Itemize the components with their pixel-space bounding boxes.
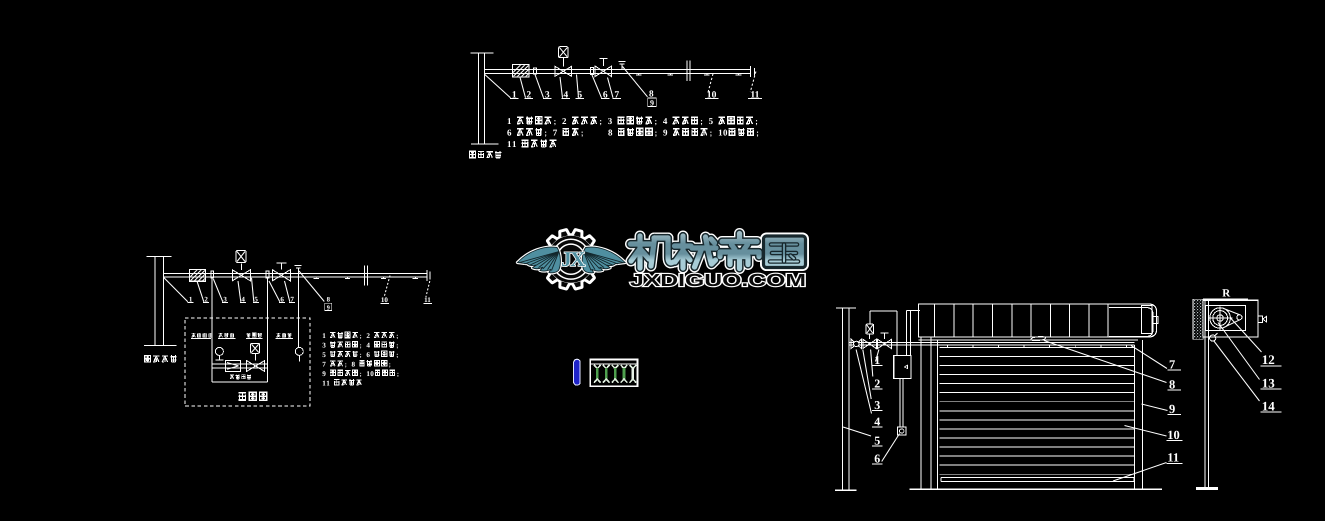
svg-text:;: ;: [756, 129, 759, 138]
svg-text:8: 8: [352, 360, 356, 368]
svg-text:10: 10: [1167, 428, 1180, 442]
svg-text:;: ;: [654, 117, 657, 126]
svg-text:11: 11: [1167, 451, 1179, 465]
svg-text:4: 4: [874, 415, 880, 429]
svg-text:6: 6: [366, 351, 370, 359]
svg-text:;: ;: [710, 129, 713, 138]
svg-text:;: ;: [396, 333, 398, 340]
svg-text:14: 14: [1262, 398, 1276, 413]
svg-text:1: 1: [189, 295, 193, 303]
svg-text:0: 0: [723, 128, 728, 138]
svg-text:;: ;: [581, 129, 584, 138]
svg-text:8: 8: [649, 88, 654, 98]
svg-text:12: 12: [1262, 352, 1275, 367]
svg-text:;: ;: [397, 371, 399, 378]
svg-text:1: 1: [874, 353, 880, 367]
svg-text:7: 7: [322, 360, 326, 368]
svg-text:5: 5: [874, 434, 880, 448]
svg-text:1: 1: [512, 139, 517, 149]
svg-text:;: ;: [544, 129, 547, 138]
svg-text:1: 1: [507, 116, 512, 126]
svg-text:9: 9: [322, 370, 326, 378]
svg-text:9: 9: [663, 128, 668, 138]
svg-text:;: ;: [554, 117, 557, 126]
svg-text:1: 1: [326, 379, 330, 387]
svg-text:9: 9: [327, 305, 330, 312]
svg-text:7: 7: [290, 295, 294, 303]
svg-text:1: 1: [322, 332, 326, 340]
svg-text:R: R: [1222, 288, 1231, 300]
svg-text:;: ;: [360, 333, 362, 340]
svg-text:9: 9: [650, 98, 654, 107]
svg-text:5: 5: [709, 116, 714, 126]
svg-text:2: 2: [204, 295, 208, 303]
svg-text:11: 11: [424, 296, 431, 304]
svg-text:;: ;: [599, 117, 602, 126]
svg-text:5: 5: [254, 295, 258, 303]
svg-text:;: ;: [360, 342, 362, 349]
svg-text:JX: JX: [561, 247, 585, 271]
svg-text:8: 8: [327, 296, 331, 303]
svg-text:2: 2: [366, 332, 370, 340]
svg-text:6: 6: [507, 128, 512, 138]
svg-text:2: 2: [562, 116, 567, 126]
svg-text:;: ;: [700, 117, 703, 126]
svg-text:3: 3: [223, 295, 227, 303]
svg-text:3: 3: [608, 116, 613, 126]
svg-text:3: 3: [874, 398, 880, 412]
svg-text:4: 4: [663, 116, 668, 126]
svg-text:13: 13: [1262, 375, 1276, 390]
svg-text:;: ;: [655, 129, 658, 138]
svg-text:10: 10: [381, 296, 389, 304]
svg-text:4: 4: [241, 295, 245, 303]
svg-text:;: ;: [360, 352, 362, 359]
svg-text:;: ;: [360, 371, 362, 378]
svg-text:3: 3: [322, 341, 326, 349]
svg-text:;: ;: [396, 342, 398, 349]
svg-text:8: 8: [608, 128, 613, 138]
svg-text:8: 8: [1169, 377, 1175, 391]
svg-text:6: 6: [280, 295, 284, 303]
svg-text:6: 6: [874, 451, 880, 465]
svg-text:7: 7: [553, 128, 558, 138]
svg-text:;: ;: [396, 352, 398, 359]
svg-text:;: ;: [755, 117, 758, 126]
svg-text:;: ;: [389, 361, 391, 368]
svg-text:5: 5: [322, 351, 326, 359]
svg-text:2: 2: [874, 376, 880, 390]
svg-text:4: 4: [366, 341, 370, 349]
svg-text:0: 0: [370, 370, 374, 378]
svg-text:9: 9: [1169, 402, 1175, 416]
svg-text:7: 7: [1169, 357, 1175, 371]
svg-text:;: ;: [345, 361, 347, 368]
svg-text:JXDIGUO.COM: JXDIGUO.COM: [630, 270, 806, 290]
